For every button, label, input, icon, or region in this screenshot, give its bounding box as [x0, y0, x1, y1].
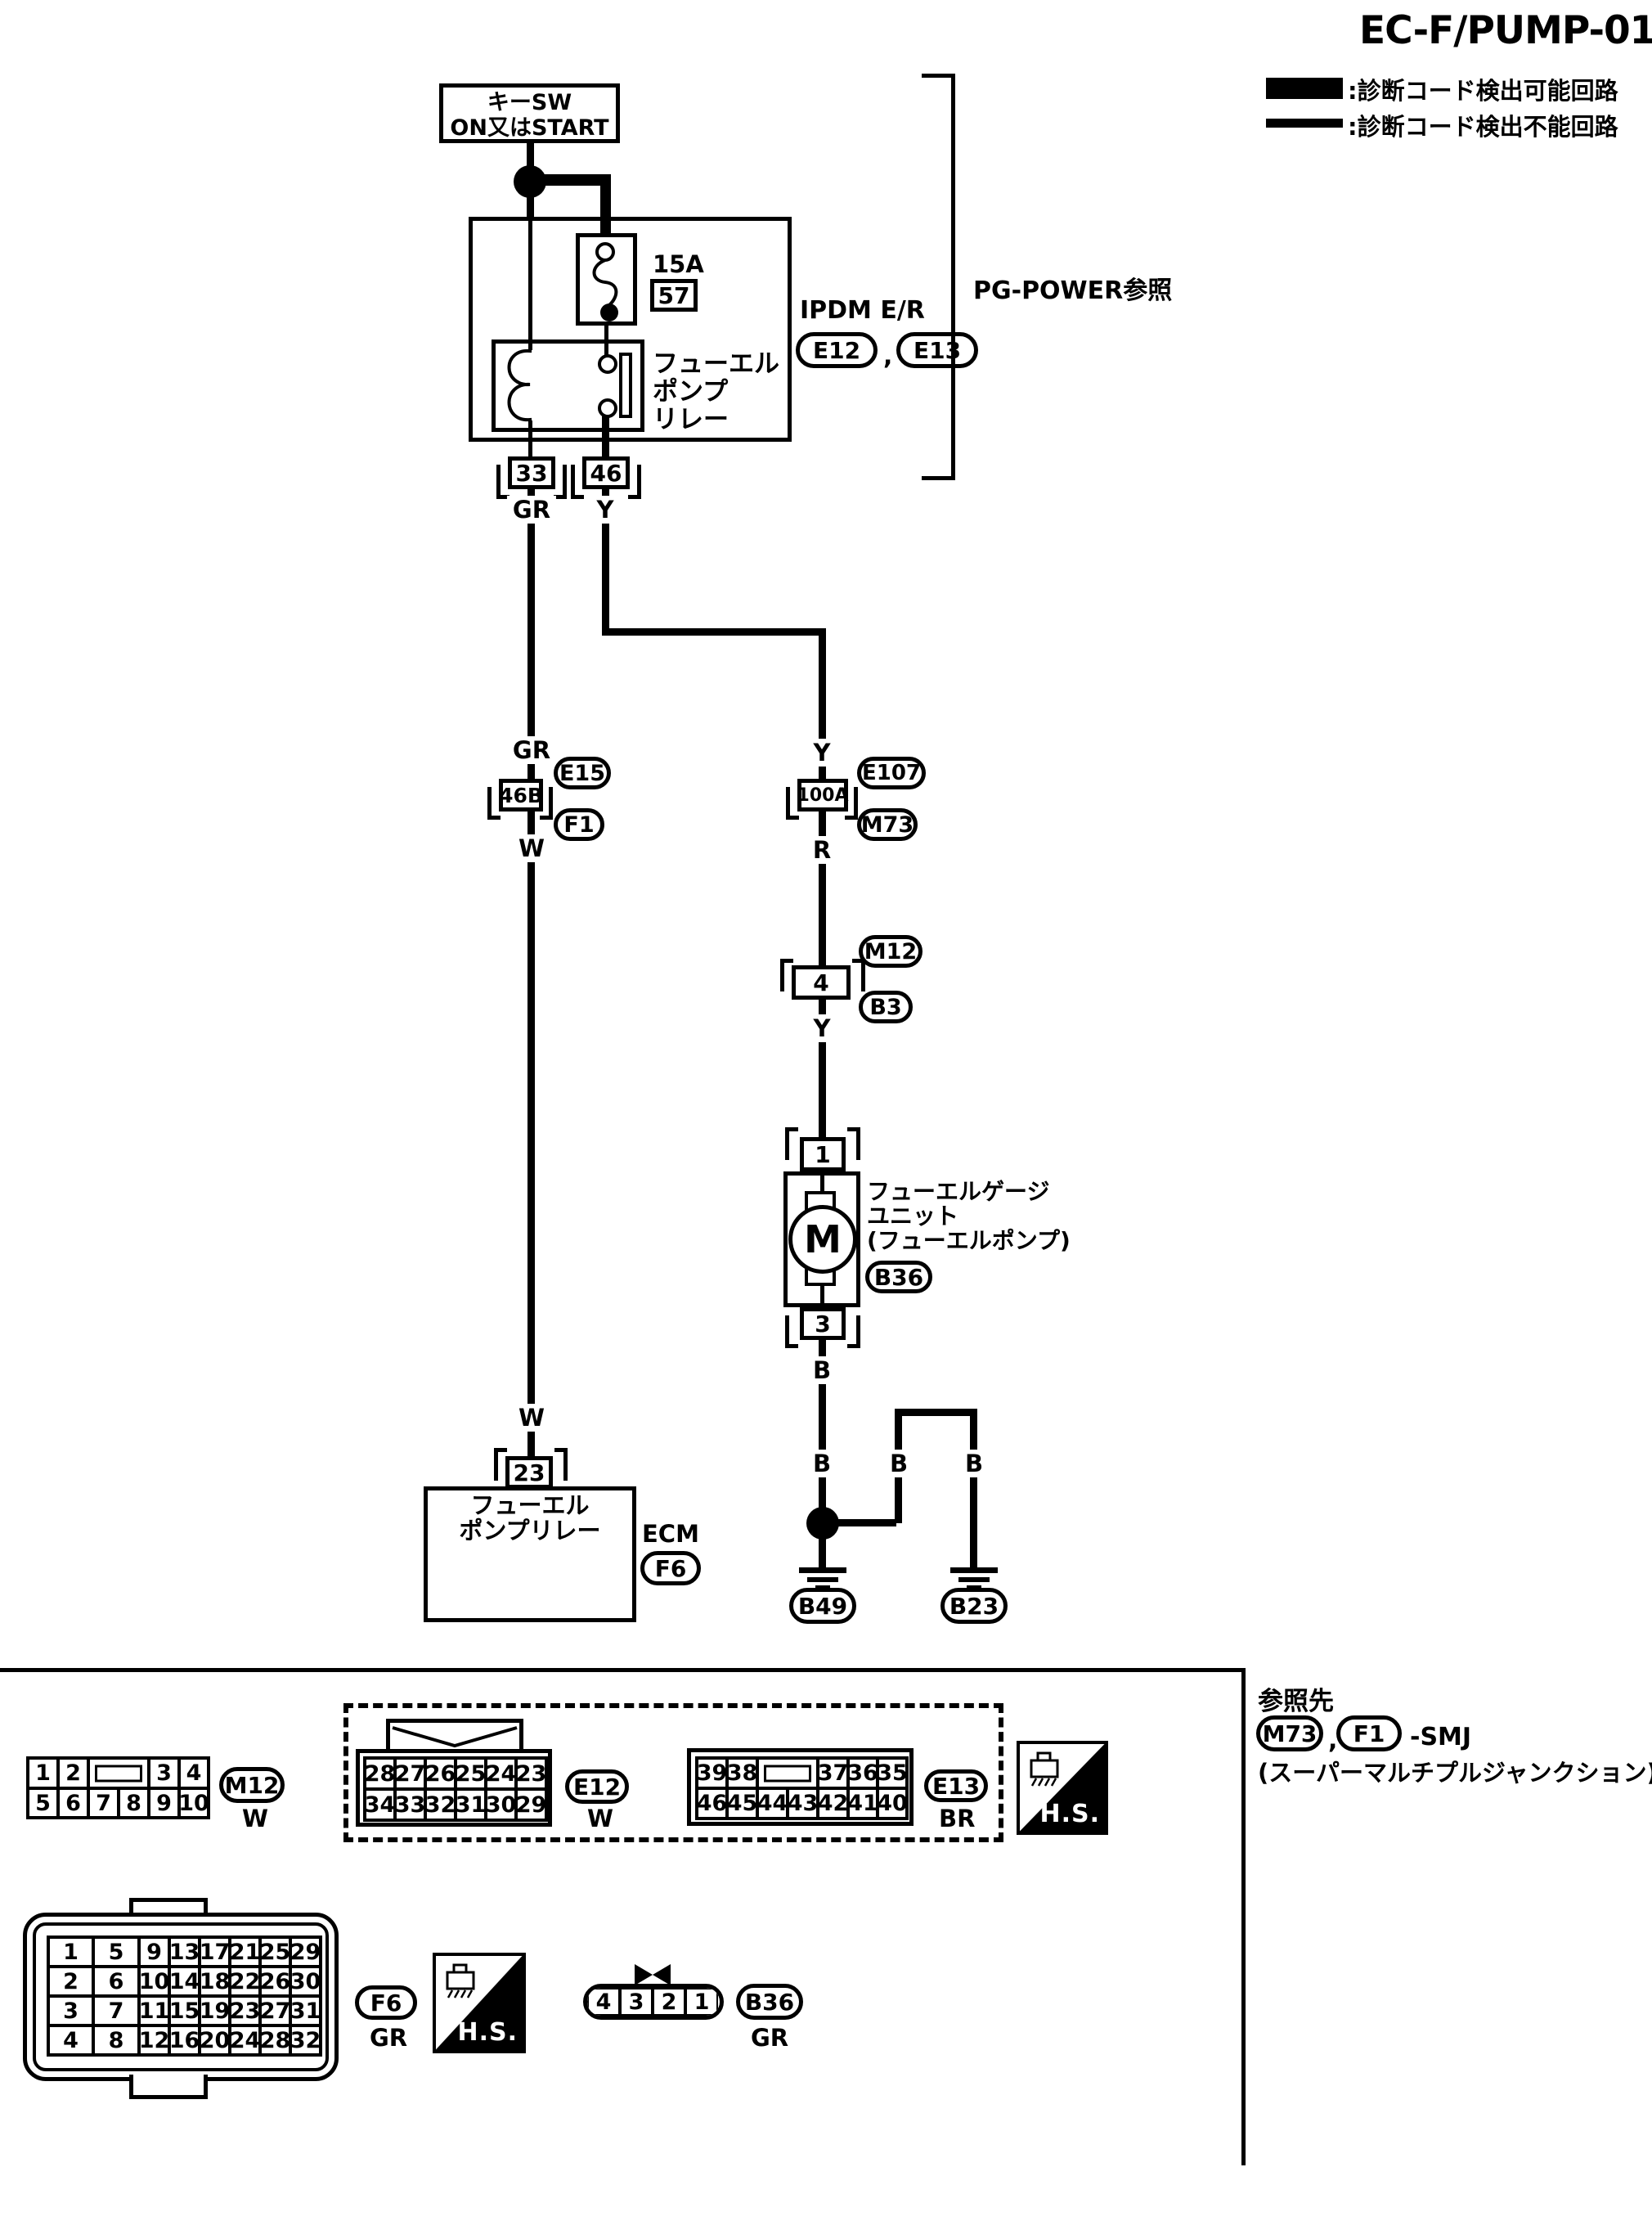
ecm-relay-line2: ポンプリレー	[428, 1518, 632, 1544]
ground-ref-b49: B49	[789, 1588, 856, 1624]
connector-ref-e12-footer: E12	[565, 1769, 629, 1804]
ipdm-pin-33: 33	[508, 456, 555, 489]
wire	[602, 416, 609, 458]
connector-icon	[441, 1961, 483, 2000]
pin-cell: 35	[878, 1758, 907, 1788]
wire-color-label: W	[513, 834, 550, 862]
pin-cell: 44	[757, 1788, 788, 1819]
pin-cell: 8	[119, 1788, 149, 1818]
fuse-symbol	[577, 235, 635, 324]
keying-slot	[88, 1758, 149, 1788]
ecm-relay-line1: フューエル	[428, 1493, 632, 1518]
pin-bracket	[554, 465, 567, 499]
pin-cell: 29	[290, 1937, 321, 1967]
pin-cell: 31	[456, 1789, 486, 1820]
pin-cell: 1	[48, 1937, 93, 1967]
pin-cell: 38	[727, 1758, 757, 1788]
pin-cell: 45	[727, 1788, 757, 1819]
wire	[970, 1409, 977, 1569]
connector-ref-m12-footer: M12	[219, 1767, 285, 1803]
connector-icon	[1025, 1749, 1067, 1788]
pin-cell: 14	[169, 1967, 200, 1996]
pin-cell: 33	[395, 1789, 425, 1820]
hs-view-icon: H.S.	[433, 1953, 526, 2053]
wire-color-label: Y	[808, 1014, 837, 1042]
connector-tab	[129, 2075, 208, 2099]
connector-ref-e107: E107	[857, 757, 926, 789]
pin-cell: 9	[139, 1937, 169, 1967]
pump-unit-name: フューエルゲージ ユニット (フューエルポンプ)	[867, 1180, 1071, 1253]
pin-cell: 41	[848, 1788, 878, 1819]
pin-bracket	[785, 1315, 798, 1348]
hs-view-icon: H.S.	[1017, 1741, 1108, 1835]
connector-color-label: BR	[939, 1805, 975, 1832]
pin-cell: 1	[685, 1988, 718, 2016]
page-title: EC-F/PUMP-01	[1359, 8, 1652, 53]
motor-letter: M	[804, 1217, 842, 1261]
pin-cell: 3	[149, 1758, 179, 1788]
reference-title: 参照先	[1258, 1680, 1334, 1717]
pin-cell: 10	[179, 1788, 209, 1818]
pin-cell: 6	[93, 1967, 139, 1996]
pin-cell: 22	[230, 1967, 260, 1996]
wire-color-label: Y	[591, 496, 620, 524]
junction-dot	[806, 1507, 839, 1540]
smj-pin-46b: 46B	[499, 779, 543, 812]
connector-ref-e13: E13	[896, 332, 978, 368]
pin-cell: 2	[48, 1967, 93, 1996]
pump-pin-3: 3	[800, 1307, 846, 1340]
fuse-rating-label: 15A	[653, 250, 704, 278]
wire	[530, 174, 610, 186]
pin-cell: 13	[169, 1937, 200, 1967]
pump-pin-1: 1	[800, 1137, 846, 1171]
smj-note: (スーパーマルチプルジャンクション)	[1258, 1754, 1652, 1788]
pump-unit-line3: (フューエルポンプ)	[867, 1229, 1071, 1253]
relay-contact-blade	[619, 353, 632, 418]
pin-cell: 31	[290, 1996, 321, 2025]
pin-cell: 7	[93, 1996, 139, 2025]
wire	[837, 1519, 896, 1526]
pin-cell: 17	[200, 1937, 230, 1967]
connector-ref-f6: F6	[640, 1551, 701, 1585]
pin-cell: 36	[848, 1758, 878, 1788]
pin-cell: 2	[58, 1758, 88, 1788]
pg-power-ref-label: PG-POWER参照	[973, 270, 1172, 306]
pin-cell: 15	[169, 1996, 200, 2025]
relay-name-line2: ポンプ	[653, 378, 779, 406]
connector-color-label: GR	[751, 2024, 788, 2052]
relay-contact-terminal	[598, 398, 617, 418]
pin-cell: 26	[260, 1967, 290, 1996]
wire-color-label: Y	[808, 739, 837, 767]
motor-symbol: M	[788, 1205, 857, 1274]
ecm-name: ECM	[642, 1520, 699, 1548]
wire-color-label: B	[884, 1450, 914, 1477]
pin-cell: 18	[200, 1967, 230, 1996]
pin-cell: 21	[230, 1937, 260, 1967]
section-divider	[1241, 1668, 1246, 2165]
pin-cell: 27	[395, 1758, 425, 1789]
pin-cell: 16	[169, 2025, 200, 2055]
connector-ref-e12: E12	[796, 332, 878, 368]
keying-bowtie-icon	[635, 1964, 671, 1985]
connector-ref-e15: E15	[554, 757, 611, 789]
connector-ref-b36-footer: B36	[736, 1984, 803, 2020]
pin-cell: 39	[697, 1758, 727, 1788]
connector-face-b36: 4 3 2 1	[583, 1984, 724, 2020]
relay-coil-symbol	[499, 348, 535, 422]
pin-cell: 7	[88, 1788, 119, 1818]
pin-cell: 25	[260, 1937, 290, 1967]
pin-cell: 24	[230, 2025, 260, 2055]
pin-cell: 43	[788, 1788, 818, 1819]
pin-cell: 46	[697, 1788, 727, 1819]
pin-cell: 12	[139, 2025, 169, 2055]
connector-color-label: GR	[370, 2024, 407, 2052]
ipdm-name: IPDM E/R	[800, 296, 925, 325]
connector-face-e13: 39 38 37 36 35 46 45 44 43 42 41 40	[695, 1756, 909, 1820]
pin-cell: 34	[365, 1789, 395, 1820]
pin-cell: 20	[200, 2025, 230, 2055]
ground-symbol	[798, 1567, 847, 1589]
ground-symbol	[949, 1567, 999, 1589]
pin-cell: 29	[516, 1789, 546, 1820]
comma: ,	[883, 342, 892, 371]
pin-cell: 32	[290, 2025, 321, 2055]
wire-color-label: W	[513, 1404, 550, 1432]
pin-cell: 28	[365, 1758, 395, 1789]
pump-unit-line1: フューエルゲージ	[867, 1180, 1071, 1204]
pin-cell: 25	[456, 1758, 486, 1789]
pin-cell: 4	[179, 1758, 209, 1788]
reference-bracket	[922, 476, 953, 480]
pin-cell: 26	[425, 1758, 456, 1789]
wiring-diagram-page: EC-F/PUMP-01 :診断コード検出可能回路 :診断コード検出不能回路 キ…	[0, 0, 1652, 2239]
wire	[528, 217, 532, 350]
connector-face-f6: 1591317212529261014182226303711151923273…	[47, 1936, 322, 2057]
connector-face-m12: 1 2 3 4 5 6 7 8 9 10	[26, 1756, 210, 1819]
legend-not-detectable-label: :診断コード検出不能回路	[1348, 108, 1618, 142]
pin-cell: 4	[587, 1988, 620, 2016]
pin-cell: 5	[93, 1937, 139, 1967]
ipdm-pin-46: 46	[582, 456, 630, 489]
connector-color-label: W	[587, 1805, 613, 1832]
legend-detectable-label: :診断コード検出可能回路	[1348, 72, 1618, 106]
smj-pin-100a: 100A	[797, 779, 848, 812]
body-conn-pin-4: 4	[792, 965, 851, 1000]
hs-label: H.S.	[457, 2018, 518, 2047]
connector-ref-m73-footer: M73	[1256, 1715, 1323, 1751]
pin-cell: 1	[28, 1758, 58, 1788]
pin-cell: 3	[620, 1988, 653, 2016]
pin-cell: 6	[58, 1788, 88, 1818]
ground-ref-b23: B23	[940, 1588, 1008, 1624]
wire-color-label: R	[807, 836, 837, 864]
connector-ref-f1-footer: F1	[1336, 1715, 1402, 1751]
pin-bracket	[554, 1448, 568, 1481]
pin-cell: 2	[653, 1988, 685, 2016]
key-switch-line2: ON又はSTART	[443, 115, 616, 141]
connector-ref-m12: M12	[859, 935, 923, 968]
hs-label: H.S.	[1039, 1800, 1100, 1828]
pin-cell: 27	[260, 1996, 290, 2025]
connector-ref-f6-footer: F6	[355, 1985, 417, 2020]
pin-bracket	[847, 1127, 860, 1160]
pin-cell: 42	[818, 1788, 848, 1819]
pin-cell: 32	[425, 1789, 456, 1820]
pin-cell: 11	[139, 1996, 169, 2025]
wire-color-label: B	[959, 1450, 989, 1477]
connector-color-label: W	[242, 1805, 268, 1832]
connector-ref-f1: F1	[554, 808, 604, 841]
wire	[604, 324, 608, 356]
wire	[527, 810, 535, 1458]
wire-color-label: GR	[507, 496, 556, 524]
key-switch-line1: キーSW	[443, 90, 616, 115]
ecm-pin-23: 23	[505, 1456, 553, 1489]
smj-suffix: -SMJ	[1410, 1723, 1471, 1751]
reference-bracket	[922, 74, 953, 78]
wire	[819, 810, 826, 967]
pin-cell: 4	[48, 2025, 93, 2055]
wire	[820, 1284, 824, 1307]
fuse-number-box: 57	[650, 279, 698, 312]
reference-bracket	[951, 74, 955, 480]
key-switch-box: キーSW ON又はSTART	[439, 83, 620, 143]
wire-color-label: B	[807, 1356, 837, 1384]
pin-cell: 40	[878, 1788, 907, 1819]
pin-cell: 10	[139, 1967, 169, 1996]
pin-cell: 30	[486, 1789, 516, 1820]
relay-name-line1: フューエル	[653, 350, 779, 378]
pin-cell: 28	[260, 2025, 290, 2055]
keying-slot	[757, 1758, 818, 1788]
connector-ref-m73: M73	[857, 808, 918, 841]
pump-unit-line2: ユニット	[867, 1204, 1071, 1229]
pin-cell: 19	[200, 1996, 230, 2025]
pin-cell: 8	[93, 2025, 139, 2055]
relay-name-line3: リレー	[653, 406, 779, 434]
relay-name: フューエル ポンプ リレー	[653, 350, 779, 434]
pin-cell: 23	[516, 1758, 546, 1789]
wire-color-label: B	[807, 1450, 837, 1477]
legend-thick-line-swatch	[1266, 78, 1343, 99]
wire	[895, 1409, 977, 1416]
connector-ref-e13-footer: E13	[924, 1769, 988, 1802]
pin-cell: 23	[230, 1996, 260, 2025]
connector-key-lines	[391, 1723, 518, 1749]
wire	[819, 1538, 826, 1569]
section-divider	[0, 1668, 1243, 1672]
pin-bracket	[785, 1127, 798, 1160]
pin-cell: 37	[818, 1758, 848, 1788]
pin-cell: 24	[486, 1758, 516, 1789]
wire-color-label: GR	[507, 736, 556, 764]
relay-contact-terminal	[598, 354, 617, 374]
pin-bracket	[852, 959, 865, 991]
pin-bracket	[847, 1315, 860, 1348]
pin-cell: 3	[48, 1996, 93, 2025]
pin-cell: 9	[149, 1788, 179, 1818]
ecm-box: フューエル ポンプリレー	[424, 1486, 636, 1622]
pin-cell: 30	[290, 1967, 321, 1996]
connector-ref-b36: B36	[865, 1261, 932, 1293]
wire	[602, 628, 826, 636]
pin-bracket	[628, 465, 641, 499]
connector-face-e12: 282726252423343332313029	[363, 1756, 548, 1822]
connector-ref-b3: B3	[859, 991, 913, 1023]
pin-cell: 5	[28, 1788, 58, 1818]
wire	[527, 143, 534, 168]
wire	[527, 195, 534, 219]
legend-thin-line-swatch	[1266, 119, 1343, 128]
